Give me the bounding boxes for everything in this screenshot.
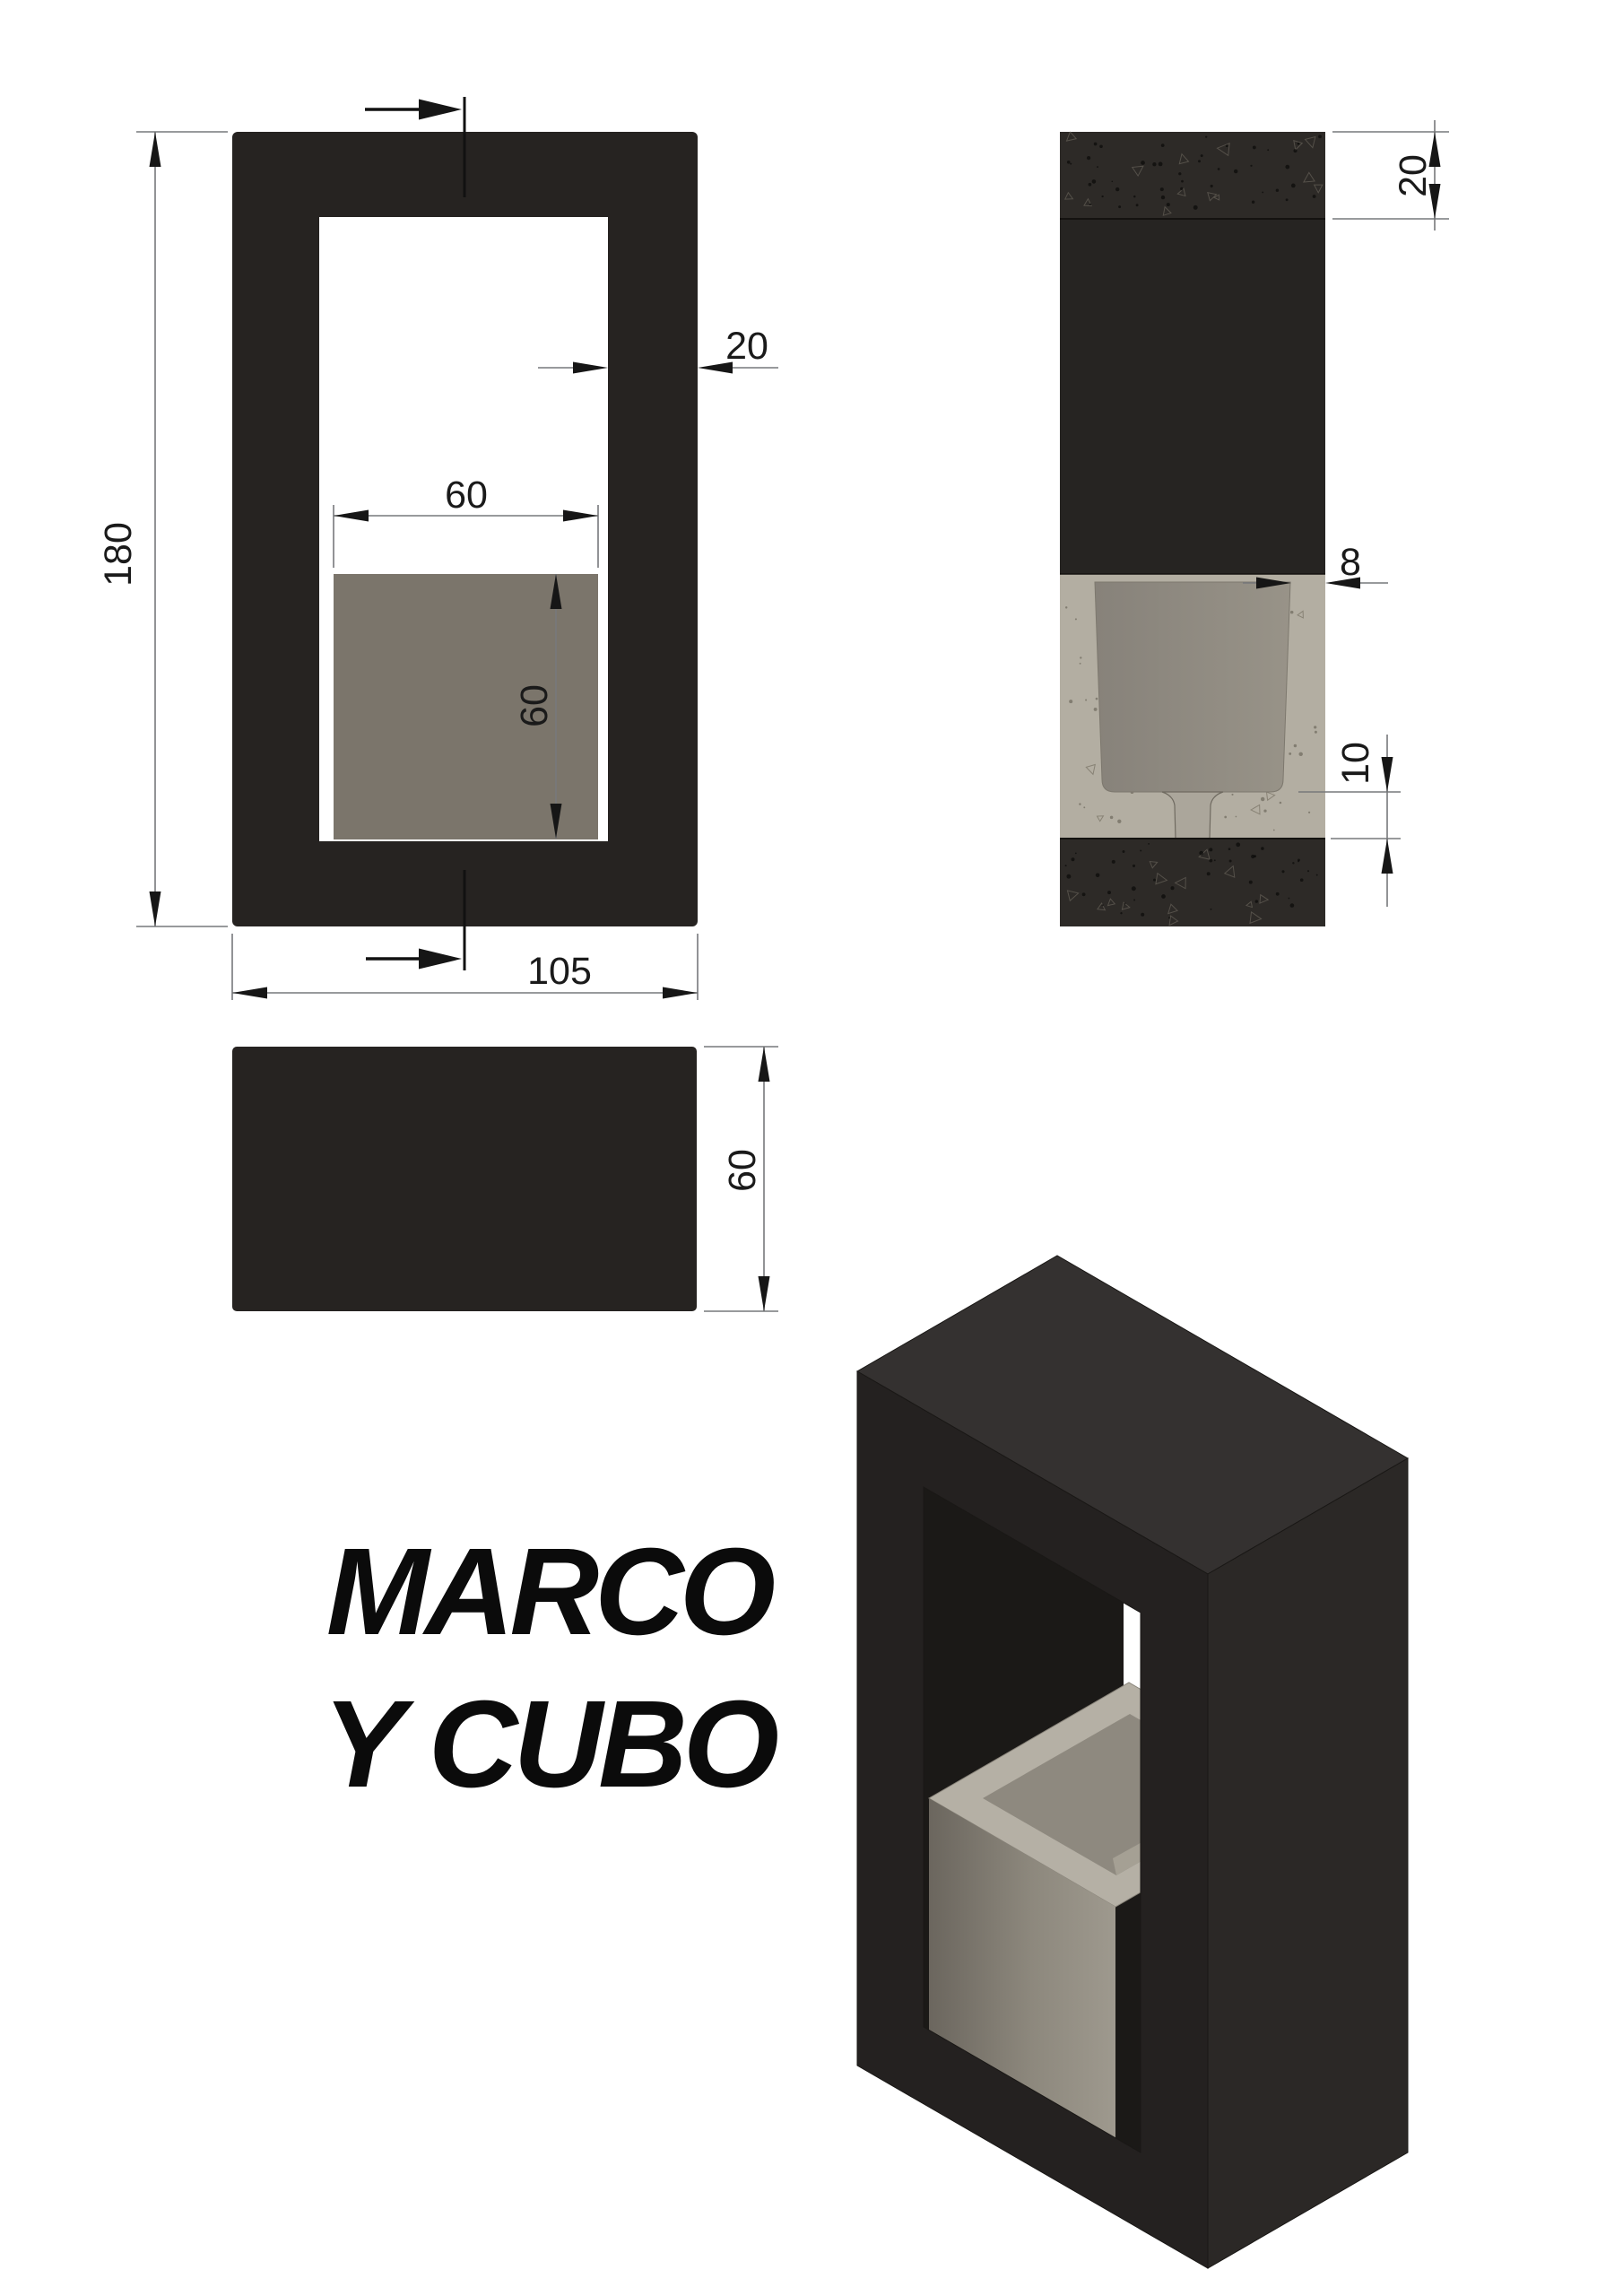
concrete-speck — [1308, 812, 1310, 813]
concrete-speck — [1132, 886, 1136, 891]
concrete-speck — [1253, 145, 1256, 149]
iso-frame-right-face — [1208, 1458, 1408, 2268]
iso-see-through-gap — [1124, 1603, 1141, 1690]
concrete-speck — [1092, 179, 1097, 184]
dim-label-cube-floor: 10 — [1334, 742, 1377, 785]
concrete-speck — [1080, 657, 1081, 658]
arrowhead-icon — [759, 1047, 770, 1082]
concrete-speck — [1307, 870, 1309, 872]
concrete-speck — [1167, 203, 1170, 206]
concrete-speck — [1224, 816, 1227, 819]
arrowhead-icon — [759, 1276, 770, 1311]
concrete-speck — [1228, 848, 1231, 850]
concrete-speck — [1181, 180, 1184, 183]
arrowhead-icon — [150, 891, 161, 926]
concrete-speck — [1261, 847, 1264, 850]
concrete-speck — [1089, 183, 1092, 187]
concrete-speck — [1276, 892, 1280, 896]
concrete-speck — [1094, 708, 1098, 711]
concrete-speck — [1180, 187, 1183, 190]
concrete-speck — [1152, 162, 1156, 166]
concrete-speck — [1226, 144, 1228, 147]
concrete-speck — [1153, 879, 1156, 882]
concrete-speck — [1236, 842, 1240, 847]
title-block: MARCO Y CUBO — [323, 1523, 778, 1813]
concrete-speck — [1123, 850, 1125, 853]
concrete-speck — [1083, 806, 1085, 808]
concrete-speck — [1170, 886, 1174, 890]
concrete-speck — [1234, 170, 1238, 174]
concrete-speck — [1067, 161, 1071, 164]
concrete-speck — [1289, 752, 1291, 755]
arrowhead-icon — [150, 132, 161, 167]
arrowhead-icon — [1382, 757, 1393, 792]
concrete-speck — [1263, 809, 1266, 812]
concrete-speck — [1294, 744, 1297, 747]
title-line-2: Y CUBO — [323, 1675, 778, 1813]
concrete-speck — [1262, 191, 1263, 193]
concrete-speck — [1293, 149, 1297, 152]
front-cube — [334, 574, 598, 839]
concrete-speck — [1218, 168, 1220, 170]
dim-label-top-depth: 60 — [721, 1149, 764, 1192]
concrete-speck — [1097, 166, 1098, 168]
cad-drawing: 180 20 60 60 105 — [0, 0, 1623, 2296]
concrete-speck — [1281, 870, 1284, 873]
concrete-speck — [1267, 149, 1269, 151]
concrete-speck — [1313, 195, 1316, 198]
concrete-speck — [1065, 865, 1067, 866]
concrete-speck — [1082, 892, 1086, 896]
concrete-speck — [1201, 154, 1203, 157]
concrete-speck — [1070, 163, 1072, 165]
concrete-speck — [1112, 181, 1114, 183]
side-top-cut-band — [1060, 132, 1325, 219]
concrete-speck — [1318, 135, 1322, 138]
concrete-speck — [1102, 904, 1104, 906]
concrete-speck — [1231, 794, 1233, 796]
arrowhead-icon — [1382, 839, 1393, 874]
concrete-speck — [1080, 663, 1081, 665]
concrete-speck — [1161, 894, 1166, 899]
concrete-speck — [1124, 902, 1126, 904]
dim-side-top-wall: 20 — [1332, 120, 1449, 230]
concrete-speck — [1117, 820, 1121, 823]
drawing-sheet: 180 20 60 60 105 — [0, 0, 1623, 2296]
concrete-speck — [1290, 611, 1294, 614]
dim-label-front-height: 180 — [97, 522, 140, 587]
concrete-speck — [1069, 700, 1072, 703]
concrete-speck — [1316, 874, 1318, 876]
concrete-speck — [1229, 860, 1232, 863]
dim-label-cube-height: 60 — [513, 684, 556, 727]
concrete-speck — [1094, 143, 1098, 146]
concrete-speck — [1096, 698, 1098, 700]
concrete-speck — [1140, 850, 1141, 852]
dim-front-height: 180 — [97, 132, 228, 926]
concrete-speck — [1133, 865, 1135, 867]
concrete-speck — [1199, 851, 1203, 856]
concrete-speck — [1085, 699, 1087, 700]
concrete-speck — [1133, 196, 1136, 198]
concrete-speck — [1314, 726, 1316, 728]
side-cavity — [1095, 582, 1290, 792]
concrete-speck — [1288, 898, 1289, 900]
concrete-speck — [1087, 156, 1090, 160]
concrete-speck — [1209, 848, 1212, 851]
concrete-speck — [1136, 204, 1139, 206]
concrete-speck — [1207, 872, 1211, 875]
concrete-speck — [1252, 201, 1255, 204]
top-frame — [232, 1047, 697, 1311]
arrowhead-icon — [232, 987, 267, 999]
section-arrow-icon — [419, 100, 462, 120]
concrete-speck — [1285, 165, 1289, 170]
dim-top-depth: 60 — [704, 1047, 778, 1311]
concrete-speck — [1065, 606, 1067, 608]
arrowhead-icon — [663, 987, 698, 999]
front-view — [232, 132, 698, 926]
title-line-1: MARCO — [326, 1523, 775, 1661]
dim-label-cube-wall: 8 — [1340, 541, 1361, 584]
dim-label-side-top-wall: 20 — [1392, 154, 1435, 197]
concrete-speck — [1141, 913, 1144, 917]
concrete-speck — [1211, 185, 1213, 187]
concrete-speck — [1250, 165, 1252, 167]
concrete-speck — [1214, 859, 1216, 861]
concrete-speck — [1066, 874, 1071, 879]
concrete-speck — [1198, 160, 1201, 162]
dim-label-front-wall: 20 — [725, 325, 768, 368]
concrete-speck — [1261, 797, 1264, 801]
concrete-speck — [1072, 857, 1075, 861]
concrete-speck — [1298, 143, 1300, 145]
concrete-speck — [1286, 198, 1289, 201]
top-view — [232, 1047, 697, 1311]
concrete-speck — [1249, 881, 1253, 884]
concrete-speck — [1089, 204, 1091, 205]
concrete-speck — [1280, 802, 1282, 804]
concrete-speck — [1178, 172, 1181, 175]
concrete-speck — [1159, 162, 1163, 167]
dim-label-front-width: 105 — [527, 950, 592, 993]
concrete-speck — [1298, 858, 1300, 861]
concrete-speck — [1161, 196, 1165, 199]
concrete-speck — [1148, 843, 1150, 845]
concrete-speck — [1096, 873, 1100, 877]
concrete-speck — [1112, 860, 1115, 864]
concrete-speck — [1255, 900, 1258, 902]
concrete-speck — [1118, 205, 1121, 208]
concrete-speck — [1115, 187, 1119, 191]
concrete-speck — [1254, 855, 1256, 857]
side-section-view — [1060, 132, 1325, 928]
side-bottom-cut-band — [1060, 839, 1325, 926]
dim-label-cube-width: 60 — [445, 474, 488, 517]
concrete-speck — [1161, 143, 1165, 147]
concrete-speck — [1291, 184, 1296, 188]
isometric-view — [857, 1256, 1408, 2268]
concrete-speck — [1211, 909, 1212, 910]
concrete-speck — [1110, 816, 1114, 820]
concrete-speck — [1209, 859, 1212, 863]
section-arrow-icon — [419, 949, 462, 970]
concrete-speck — [1133, 900, 1135, 901]
concrete-speck — [1075, 618, 1077, 620]
concrete-speck — [1276, 189, 1279, 192]
concrete-speck — [1193, 205, 1198, 210]
concrete-speck — [1079, 803, 1081, 804]
concrete-speck — [1141, 161, 1145, 165]
concrete-speck — [1107, 891, 1111, 894]
concrete-speck — [1120, 912, 1122, 914]
concrete-speck — [1300, 878, 1304, 882]
concrete-speck — [1101, 196, 1103, 197]
concrete-speck — [1205, 135, 1207, 137]
concrete-speck — [1168, 917, 1170, 918]
concrete-speck — [1292, 862, 1294, 864]
concrete-speck — [1298, 752, 1302, 756]
concrete-speck — [1315, 731, 1317, 734]
concrete-speck — [1290, 903, 1295, 908]
concrete-speck — [1075, 853, 1077, 855]
concrete-speck — [1273, 830, 1275, 831]
concrete-speck — [1236, 816, 1237, 818]
concrete-speck — [1099, 144, 1103, 148]
concrete-speck — [1160, 187, 1164, 191]
